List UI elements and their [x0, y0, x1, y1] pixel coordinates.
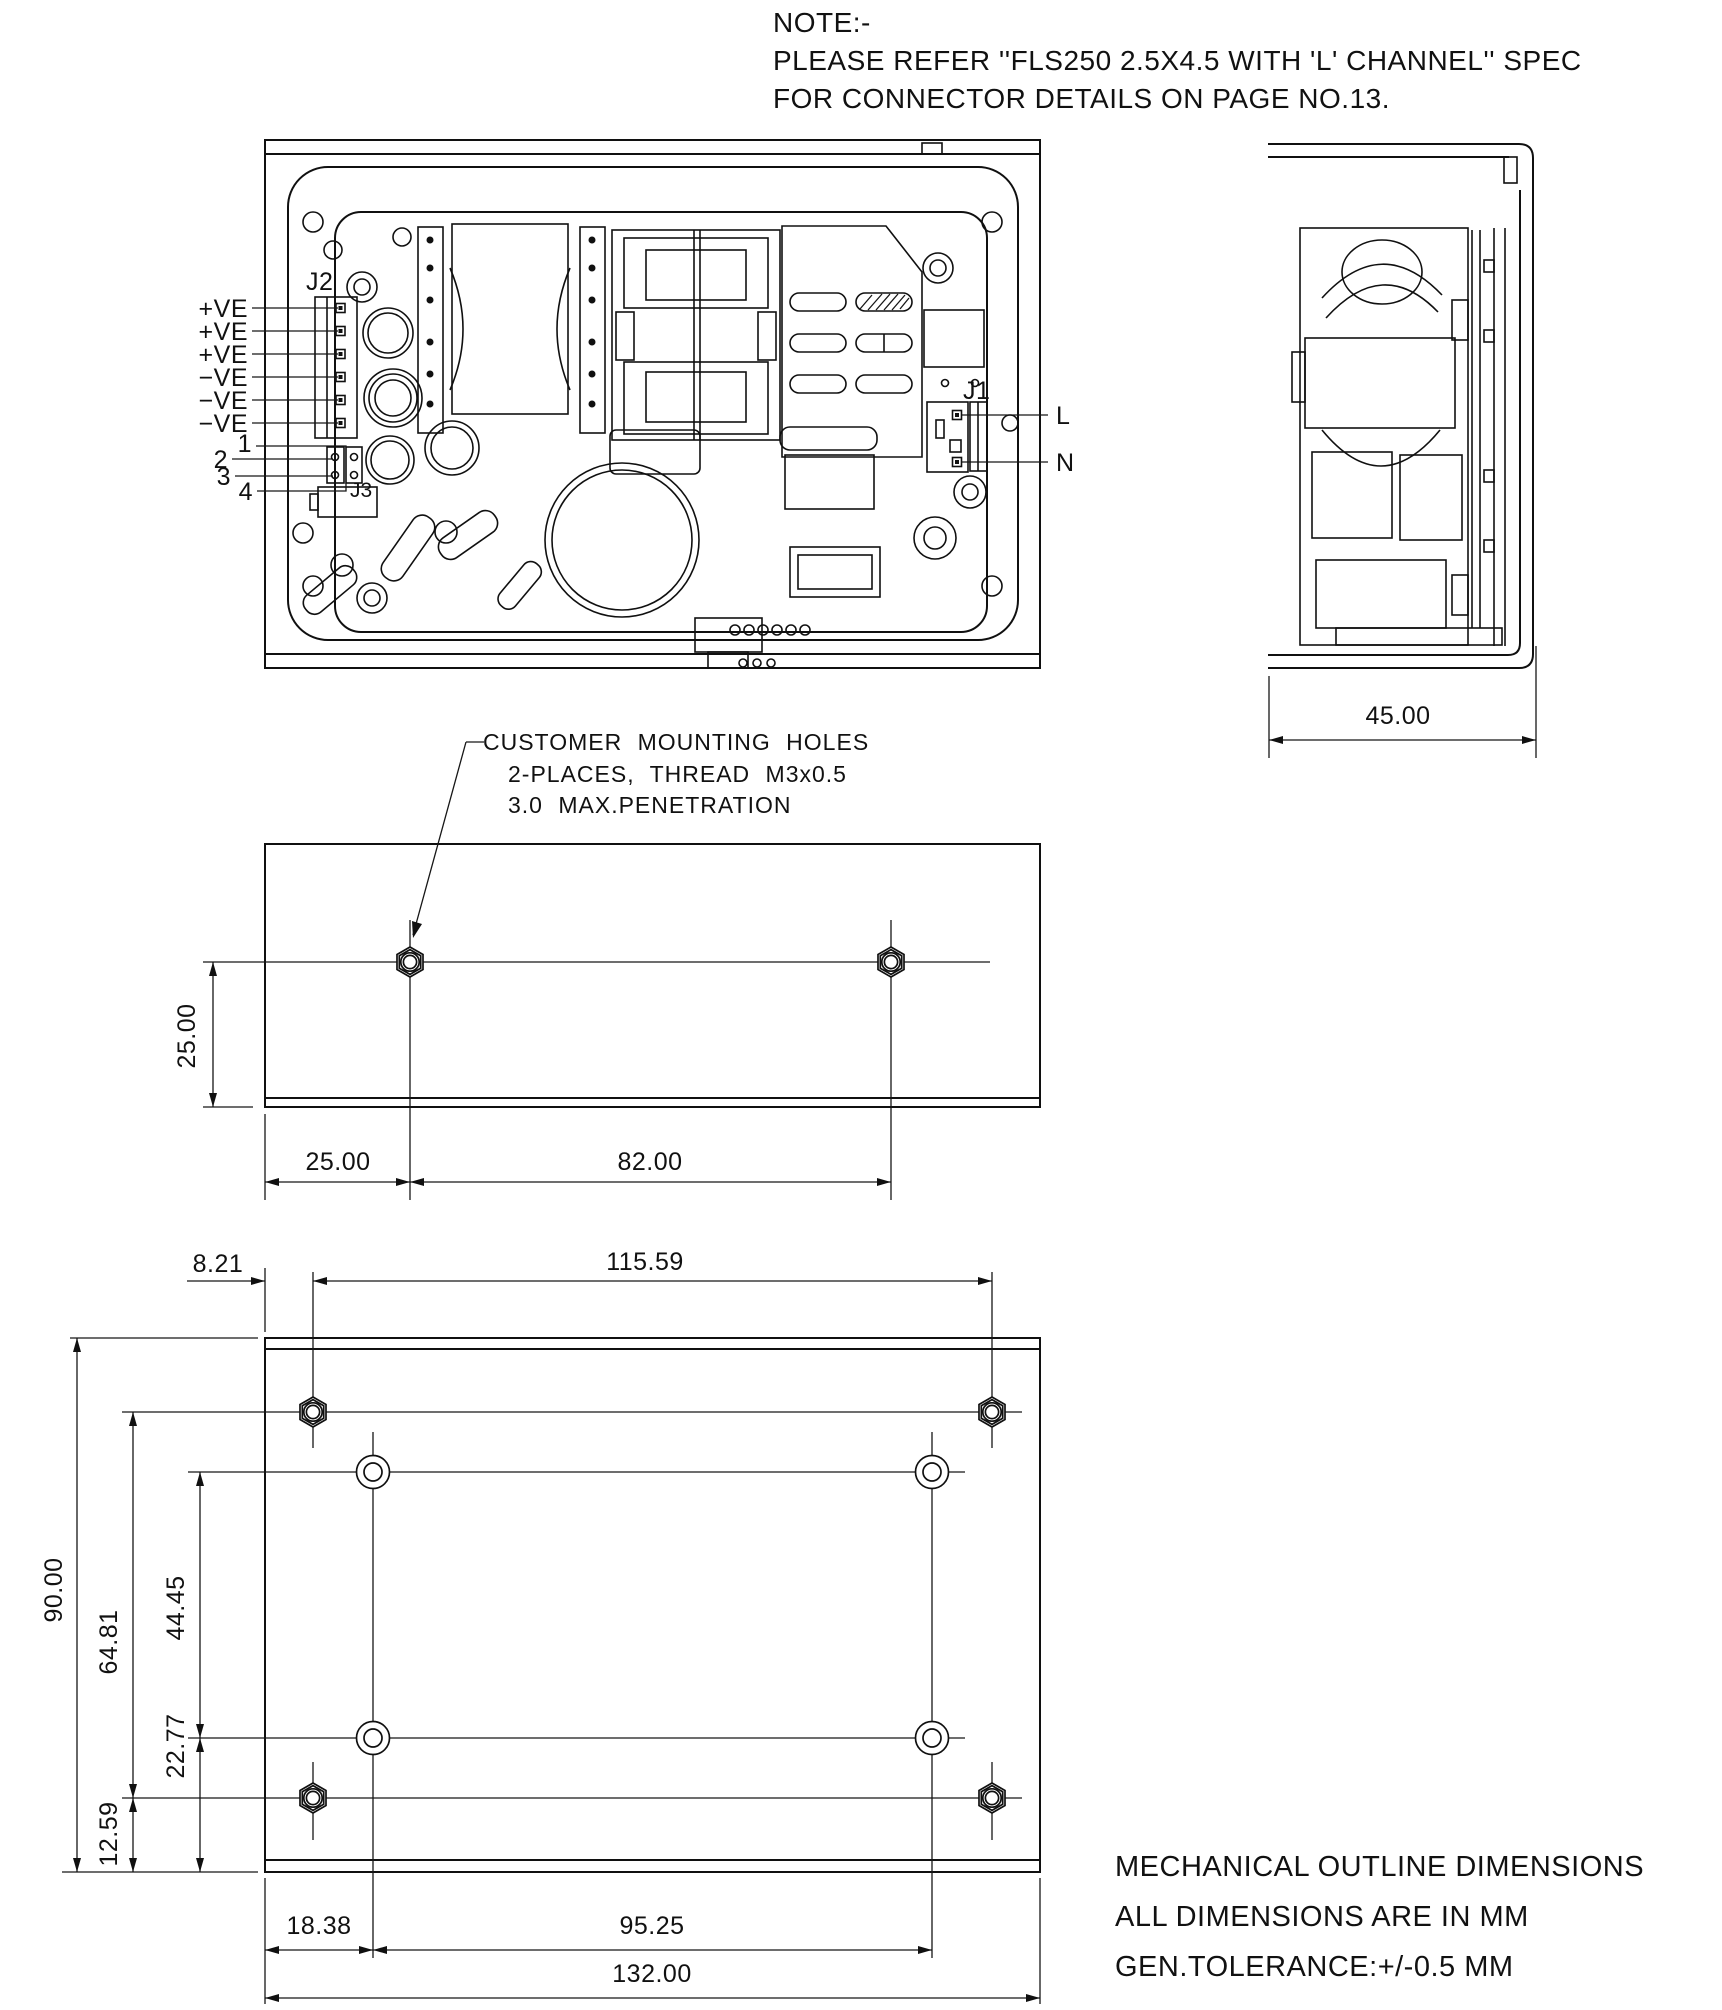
note-line-2: PLEASE REFER ''FLS250 2.5X4.5 WITH 'L' C… [773, 45, 1582, 76]
dim-8-21-value: 8.21 [193, 1250, 244, 1278]
mounting-holes-callout: CUSTOMER MOUNTING HOLES 2-PLACES, THREAD… [412, 729, 869, 938]
side-view-internals [1292, 228, 1505, 646]
j2-label: J2 [306, 268, 333, 296]
j3-label: J3 [350, 479, 372, 502]
j3-pin-leaders: 1 2 3 4 [214, 430, 346, 506]
dim-95-25-value: 95.25 [619, 1912, 684, 1940]
mounting-hole-right [878, 947, 904, 977]
j2-pin-leaders: +VE +VE +VE −VE −VE −VE [199, 295, 338, 438]
dim-132-value: 132.00 [612, 1960, 691, 1988]
clamp-assembly [612, 230, 780, 440]
note-line-3: FOR CONNECTOR DETAILS ON PAGE NO.13. [773, 83, 1390, 114]
dim-12-59-value: 12.59 [95, 1801, 123, 1866]
dim-90-value: 90.00 [40, 1557, 68, 1622]
dim-115-59-value: 115.59 [606, 1248, 684, 1276]
top-view: +VE +VE +VE −VE −VE −VE J2 1 2 3 [199, 140, 1075, 668]
screw-hole-bottom-right [916, 1722, 949, 1755]
callout-line-3: 3.0 MAX.PENETRATION [508, 792, 791, 818]
dim-132: 132.00 [265, 1960, 1040, 2002]
note-line-1: NOTE:- [773, 7, 871, 38]
callout-line-1: CUSTOMER MOUNTING HOLES [483, 729, 869, 755]
dim-25-left-value: 25.00 [305, 1148, 370, 1176]
hex-hole-bottom-left [300, 1783, 326, 1813]
dim-12-59: 12.59 [95, 1798, 137, 1872]
footer-line-1: MECHANICAL OUTLINE DIMENSIONS [1115, 1851, 1644, 1883]
dim-45-value: 45.00 [1365, 702, 1430, 730]
dim-64-81-value: 64.81 [95, 1609, 123, 1674]
bottom-view: 8.21 115.59 90.00 64.81 44.45 [40, 1248, 1040, 2004]
dim-25-vertical-value: 25.00 [173, 1003, 201, 1068]
hex-hole-bottom-right [979, 1783, 1005, 1813]
transformer [418, 224, 605, 433]
screw-hole-top-left [357, 1456, 390, 1489]
neutral-label: N [1056, 449, 1075, 477]
side-view: 45.00 [1268, 144, 1536, 758]
note-block: NOTE:- PLEASE REFER ''FLS250 2.5X4.5 WIT… [773, 7, 1582, 114]
middle-view: CUSTOMER MOUNTING HOLES 2-PLACES, THREAD… [173, 729, 1040, 1200]
j1-label: J1 [963, 377, 990, 405]
line-label: L [1056, 402, 1070, 430]
screw-hole-top-right [916, 1456, 949, 1489]
dim-18-38-value: 18.38 [286, 1912, 351, 1940]
dim-45: 45.00 [1269, 646, 1536, 758]
callout-line-2: 2-PLACES, THREAD M3x0.5 [508, 761, 847, 787]
dim-90: 90.00 [40, 1338, 81, 1872]
pin-num-1: 1 [238, 430, 252, 458]
dim-44-45: 44.45 [162, 1472, 204, 1738]
dim-64-81: 64.81 [95, 1412, 137, 1798]
screw-hole-bottom-left [357, 1722, 390, 1755]
footer-line-3: GEN.TOLERANCE:+/-0.5 MM [1115, 1951, 1514, 1983]
mounting-hole-left [397, 947, 423, 977]
dim-44-45-value: 44.45 [162, 1575, 190, 1640]
footer-line-2: ALL DIMENSIONS ARE IN MM [1115, 1901, 1529, 1933]
dim-82-value: 82.00 [617, 1148, 682, 1176]
footer-block: MECHANICAL OUTLINE DIMENSIONS ALL DIMENS… [1115, 1851, 1644, 1983]
dim-22-77: 22.77 [162, 1713, 204, 1872]
angled-components [299, 506, 545, 618]
drawing-sheet: NOTE:- PLEASE REFER ''FLS250 2.5X4.5 WIT… [0, 0, 1722, 2010]
drawing-canvas: NOTE:- PLEASE REFER ''FLS250 2.5X4.5 WIT… [0, 0, 1722, 2010]
dim-8-21: 8.21 [187, 1250, 265, 1285]
pin-num-4: 4 [239, 478, 253, 506]
hex-hole-top-right [979, 1397, 1005, 1427]
dim-25-82-bottom: 25.00 82.00 [265, 1114, 891, 1200]
dim-25-vertical: 25.00 [173, 962, 253, 1107]
heatsink-block [782, 226, 984, 457]
dim-22-77-value: 22.77 [162, 1713, 190, 1778]
pin-num-3: 3 [217, 463, 231, 491]
hex-hole-top-left [300, 1397, 326, 1427]
dim-115-59: 115.59 [313, 1248, 992, 1285]
dim-18-38-95-25: 18.38 95.25 [265, 1912, 932, 1954]
